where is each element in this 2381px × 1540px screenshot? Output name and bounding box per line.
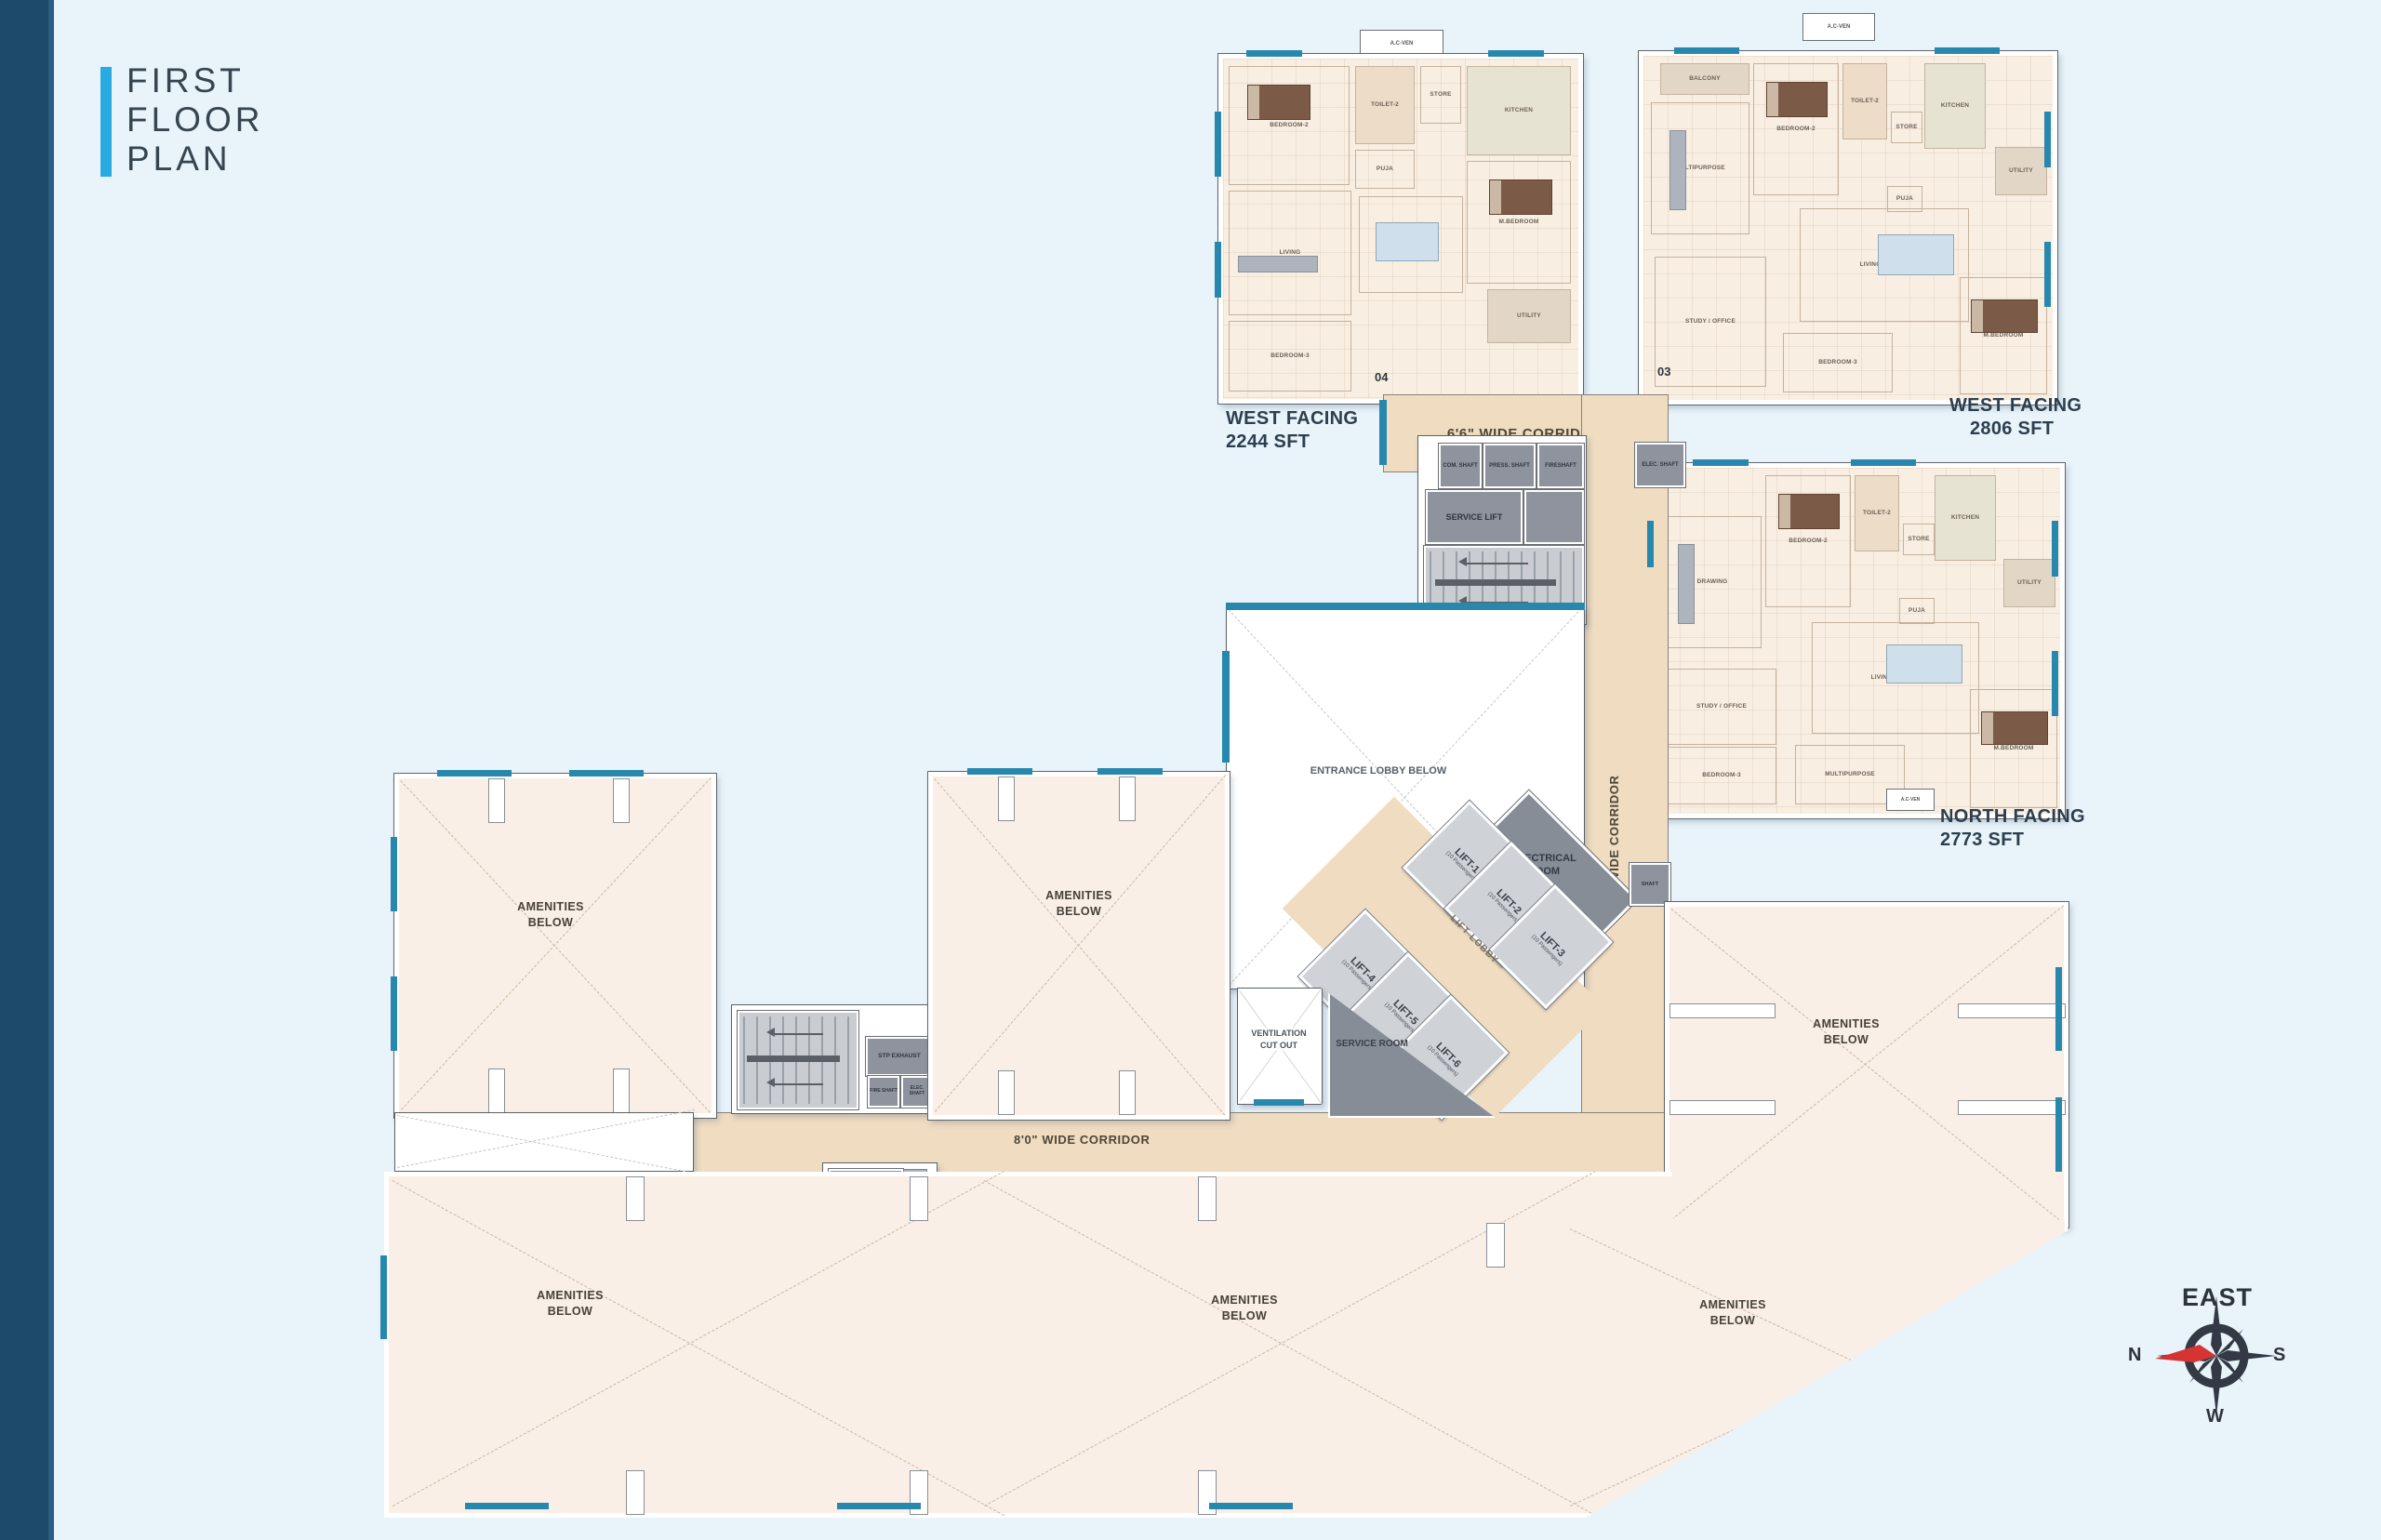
unit03-door-marker: 03 (1657, 365, 1670, 378)
stp-exhaust: STP EXHAUST (866, 1037, 933, 1076)
unit03-caption: WEST FACING 2806 SFT (1949, 394, 2089, 441)
amenity-band-bottom: AMENITIES BELOW AMENITIES BELOW AMENITIE… (384, 1172, 2069, 1518)
window-strip (2044, 242, 2051, 307)
room-bedroom3-u04: BEDROOM-3 (1229, 321, 1351, 392)
stair-arrow (771, 1033, 823, 1035)
title-line-3: PLAN (126, 139, 263, 179)
window-strip (967, 768, 1032, 775)
window-strip (437, 770, 512, 777)
ac-ven-label: A.C-VEN (1828, 24, 1851, 30)
room-toilet2-u03: TOILET-2 (1842, 63, 1887, 139)
window-strip (1647, 521, 1654, 567)
ventilation-label: VENTILATION CUT OUT (1244, 1028, 1314, 1051)
amenity-block-left: AMENITIES BELOW (394, 774, 716, 1118)
com-shaft: COM. SHAFT (1439, 444, 1482, 488)
window-strip (1215, 112, 1221, 177)
amenity-diagonal (392, 1180, 1004, 1516)
elec-shaft-unit02-label: ELEC. SHAFT (1642, 462, 1678, 469)
room-kitchen-u03: KITCHEN (1924, 63, 1986, 149)
room-mbedroom-u02: M.BEDROOM (1970, 689, 2057, 808)
pillar (626, 1470, 645, 1515)
bed-furniture (1981, 711, 2048, 745)
window-strip (837, 1503, 921, 1509)
amenity-label: AMENITIES BELOW (1028, 888, 1130, 920)
compass-w: W (2206, 1406, 2224, 1427)
window-strip (1222, 651, 1230, 763)
strip-diagonal (397, 1115, 695, 1174)
press-shaft: PRESS. SHAFT (1483, 444, 1536, 488)
left-edge-strip (0, 0, 48, 1540)
service-lift: SERVICE LIFT (1426, 490, 1523, 544)
dining-table-furniture (1376, 222, 1439, 261)
pillar (626, 1176, 645, 1221)
window-strip (1246, 50, 1302, 57)
stair-arrow (1463, 563, 1528, 564)
unit04-area: 2244 SFT (1226, 431, 1384, 454)
bed-furniture (1778, 494, 1840, 529)
room-store-u03: STORE (1891, 112, 1922, 143)
service-room-label: SERVICE ROOM (1336, 1038, 1408, 1050)
window-strip (465, 1503, 549, 1509)
room-utility-u03: UTILITY (1995, 147, 2047, 195)
ac-ven-box-unit03: A.C-VEN (1802, 13, 1875, 41)
amenity-block-right: AMENITIES BELOW (1665, 902, 2068, 1228)
window-strip (2055, 967, 2062, 1051)
amenity-diagonal (935, 775, 1226, 1111)
window-strip (1226, 603, 1585, 610)
small-shaft-label: SHAFT (1642, 882, 1658, 887)
window-strip (2055, 1097, 2062, 1172)
fire-shaft-label: FIRE SHAFT (870, 1089, 897, 1095)
wall-fin (1669, 1100, 1776, 1115)
title-accent-bar (100, 67, 112, 177)
ac-ven-box-unit02: A.C-VEN (1886, 789, 1935, 811)
room-living-u04: LIVING (1229, 191, 1351, 315)
corridor-bottom-label: 8'0" WIDE CORRIDOR (1014, 1133, 1150, 1147)
apartment-unit-03: BALCONY MULTIPURPOSE BEDROOM-2 TOILET-2 … (1639, 51, 2057, 405)
left-edge-strip-inner (48, 0, 54, 1540)
sofa-furniture (1678, 544, 1695, 624)
room-mbedroom-u03: M.BEDROOM (1960, 277, 2047, 394)
wall-fin (1958, 1003, 2066, 1018)
sofa-furniture (1238, 256, 1318, 272)
room-store-u04: STORE (1420, 66, 1461, 124)
stair-landing (1435, 579, 1556, 586)
apartment-unit-04: BEDROOM-2 TOILET-2 PUJA STORE KITCHEN DI… (1218, 54, 1583, 404)
room-toilet2-u04: TOILET-2 (1355, 66, 1415, 144)
amenity-diagonal (1671, 905, 2064, 1219)
wall-fin (1669, 1003, 1776, 1018)
wall-fin (1958, 1100, 2066, 1115)
pillar (1486, 1223, 1505, 1268)
pillar (1119, 1070, 1136, 1115)
room-toilet2-u02: TOILET-2 (1855, 475, 1899, 551)
unit04-caption: WEST FACING 2244 SFT (1226, 407, 1384, 454)
room-store-u02: STORE (1903, 524, 1935, 555)
stair-arrow-head (762, 1078, 775, 1087)
unit02-caption: NORTH FACING 2773 SFT (1940, 805, 2089, 852)
unit04-door-marker: 04 (1375, 370, 1388, 384)
room-kitchen-u02: KITCHEN (1935, 475, 1996, 561)
room-studyoffice-u02: STUDY / OFFICE (1667, 669, 1776, 745)
window-strip (1935, 47, 2000, 54)
dining-table-furniture (1886, 644, 1962, 684)
room-multipurpose-u03: MULTIPURPOSE (1651, 102, 1749, 234)
com-shaft-label: COM. SHAFT (1443, 463, 1477, 470)
amenity-diagonal (984, 1171, 1596, 1507)
title-line-2: FLOOR (126, 100, 263, 139)
window-strip (1674, 47, 1739, 54)
window-strip (391, 976, 397, 1051)
room-balcony-u03: BALCONY (1660, 63, 1749, 95)
unit02-facing: NORTH FACING (1940, 805, 2089, 829)
amenity-diagonal (1570, 1228, 2042, 1450)
pillar (613, 1069, 630, 1113)
window-strip (2052, 521, 2058, 577)
pillar (998, 1070, 1015, 1115)
amenity-diagonal (934, 778, 1225, 1115)
fire-shaft-top-label: FIRESHAFT (1545, 463, 1576, 470)
amenity-label: AMENITIES BELOW (499, 899, 602, 931)
title-line-1: FIRST (126, 61, 263, 100)
amenity-diagonal (1670, 909, 2063, 1223)
window-strip (1097, 768, 1163, 775)
amenity-label: AMENITIES BELOW (1795, 1016, 1897, 1048)
amenity-label: AMENITIES BELOW (1682, 1297, 1784, 1329)
fire-shaft-top: FIRESHAFT (1537, 444, 1584, 488)
pillar (998, 777, 1015, 821)
pillar (488, 778, 505, 823)
pillar (910, 1176, 928, 1221)
stair-arrow (771, 1083, 823, 1085)
compass-rose-icon (2151, 1291, 2281, 1421)
window-strip (569, 770, 644, 777)
window-strip (1851, 459, 1916, 466)
apartment-unit-02: DRAWING BEDROOM-2 TOILET-2 STORE KITCHEN… (1651, 463, 2065, 818)
amenity-label: AMENITIES BELOW (519, 1288, 621, 1320)
dining-table-furniture (1878, 234, 1954, 275)
elec-shaft-unit02: ELEC. SHAFT (1635, 443, 1685, 487)
window-strip (1693, 459, 1749, 466)
corridor-vertical-label: 8'0" WIDE CORRIDOR (1607, 614, 1621, 911)
compass-s: S (2273, 1345, 2285, 1366)
window-strip (2052, 651, 2058, 716)
bed-furniture (1766, 82, 1828, 117)
page-title: FIRST FLOOR PLAN (126, 61, 263, 179)
amenity-diagonal (400, 780, 711, 1113)
room-puja-u02: PUJA (1899, 598, 1935, 624)
amenity-label: AMENITIES BELOW (1193, 1293, 1296, 1324)
room-kitchen-u04: KITCHEN (1467, 66, 1571, 155)
window-strip (1254, 1099, 1304, 1106)
room-utility-u04: UTILITY (1487, 289, 1571, 343)
fire-shaft: FIRE SHAFT (868, 1076, 899, 1108)
unit03-area: 2806 SFT (1949, 418, 2089, 441)
pillar (1198, 1176, 1217, 1221)
stp-exhaust-label: STP EXHAUST (878, 1053, 920, 1059)
ventilation-cutout: VENTILATION CUT OUT (1237, 988, 1323, 1105)
bed-furniture (1489, 179, 1552, 215)
room-bedroom3-u03: BEDROOM-3 (1783, 333, 1893, 392)
pillar (488, 1069, 505, 1113)
ac-ven-label: A.C-VEN (1901, 797, 1921, 803)
unit03-facing: WEST FACING (1949, 394, 2089, 418)
service-vestibule (1524, 490, 1584, 544)
window-strip (1209, 1503, 1293, 1509)
unit02-area: 2773 SFT (1940, 829, 2089, 852)
window-strip (1215, 242, 1221, 298)
floor-plan-canvas: FIRST FLOOR PLAN A.C-VEN BEDROOM-2 TOILE… (0, 0, 2381, 1540)
window-strip (391, 837, 397, 911)
service-lift-label: SERVICE LIFT (1446, 512, 1503, 522)
small-shaft: SHAFT (1629, 863, 1670, 906)
sofa-furniture (1669, 130, 1686, 210)
staircase-left (738, 1011, 858, 1109)
room-utility-u02: UTILITY (2003, 559, 2055, 607)
window-strip (380, 1255, 387, 1339)
bed-furniture (1971, 299, 2038, 333)
pillar (1119, 777, 1136, 821)
amenity-diagonal (401, 777, 712, 1110)
pillar (613, 778, 630, 823)
window-strip (1488, 50, 1544, 57)
bed-furniture (1247, 85, 1310, 120)
window-strip (2044, 112, 2051, 167)
amenity-diagonal (1570, 1285, 2042, 1507)
room-bedroom3-u02: BEDROOM-3 (1667, 747, 1776, 804)
window-strip (1379, 400, 1387, 465)
unit04-facing: WEST FACING (1226, 407, 1384, 431)
service-core-block: COM. SHAFT PRESS. SHAFT FIRESHAFT SERVIC… (1417, 435, 1587, 625)
amenity-block-mid: AMENITIES BELOW (928, 772, 1230, 1120)
elec-shaft-label: ELEC. SHAFT (903, 1086, 931, 1097)
corridor-vertical (1581, 394, 1669, 1174)
stair-landing (747, 1055, 840, 1062)
press-shaft-label: PRESS. SHAFT (1489, 463, 1530, 470)
left-core-block: STP EXHAUST FIRE SHAFT ELEC. SHAFT (731, 1004, 943, 1114)
ac-ven-label: A.C-VEN (1390, 41, 1414, 46)
compass-n: N (2128, 1345, 2141, 1366)
stair-arrow-head (1454, 557, 1467, 566)
strip-diagonal (397, 1109, 695, 1168)
room-puja-u04: PUJA (1355, 150, 1415, 189)
open-strip (394, 1112, 694, 1172)
room-studyoffice-u03: STUDY / OFFICE (1655, 257, 1766, 387)
entrance-lobby-label: ENTRANCE LOBBY BELOW (1309, 763, 1448, 779)
stair-arrow-head (762, 1028, 775, 1037)
